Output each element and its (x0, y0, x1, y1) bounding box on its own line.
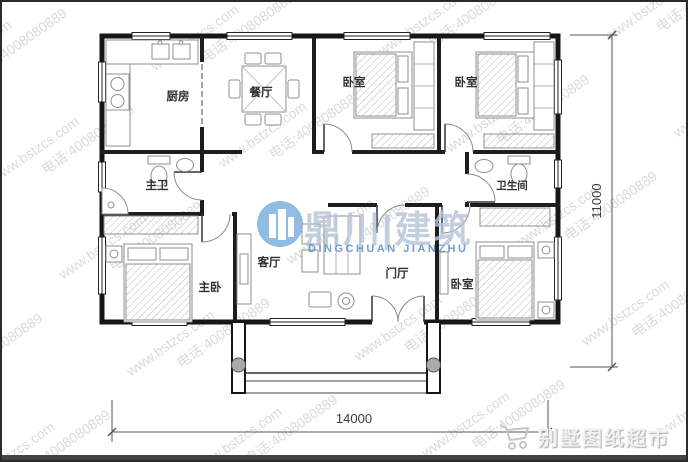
porch-column (427, 358, 441, 372)
master-bedroom-furniture (104, 216, 198, 322)
room-label-bedroom-top-right: 卧室 (455, 75, 478, 89)
bed-top-left (354, 42, 434, 148)
porch (232, 322, 441, 393)
bed-top-right (476, 42, 554, 148)
room-label-bedroom-top-left: 卧室 (343, 75, 366, 89)
room-label-living: 客厅 (257, 255, 281, 269)
room-label-master-bedroom: 主卧 (199, 280, 222, 294)
bottom-border-bar (2, 455, 686, 460)
shopping-cart-icon (498, 421, 532, 451)
dimension-width-label: 14000 (336, 411, 372, 426)
room-label-bedroom-right: 卧室 (451, 277, 474, 291)
floor-plan-image: www.bstzcs.com电话:4008080889www.bstzcs.co… (0, 0, 688, 462)
room-label-dining: 餐厅 (249, 85, 273, 99)
logo-english-text: DINGCHUAN JIANZHU (308, 243, 468, 255)
brand-name: 别墅图纸超市 (538, 422, 670, 451)
room-label-bathroom: 卫生间 (496, 179, 528, 192)
dimension-height-label: 11000 (589, 183, 604, 218)
room-label-master-bath: 主卫 (146, 178, 169, 192)
room-label-foyer: 门厅 (386, 266, 409, 280)
room-label-kitchen: 厨房 (167, 89, 190, 103)
brand-badge: 别墅图纸超市 (498, 421, 670, 451)
porch-column (232, 358, 246, 372)
dingchuan-logo-icon (256, 199, 304, 249)
